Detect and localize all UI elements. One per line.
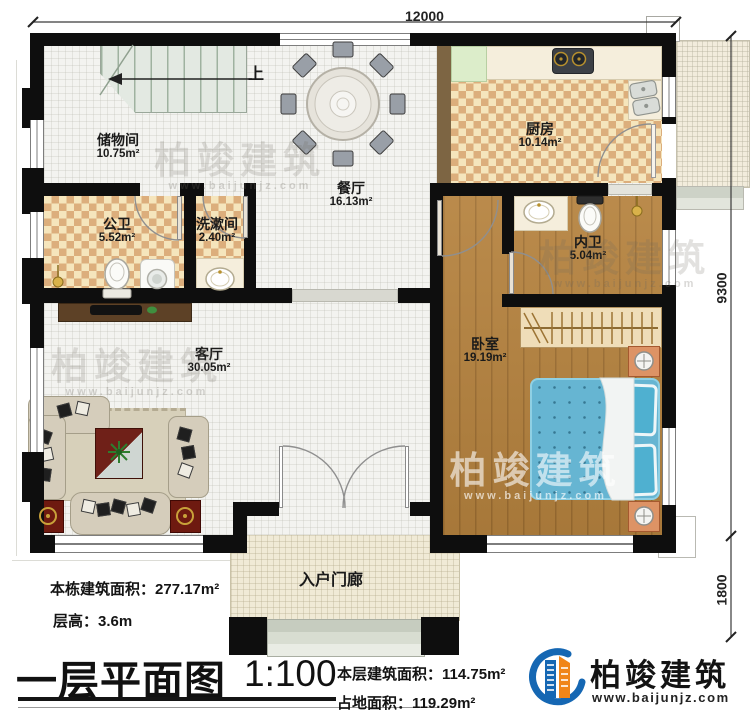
- wall-pilaster: [22, 168, 30, 214]
- coffee-table: [95, 428, 143, 479]
- entry-door-leaf: [405, 446, 409, 508]
- window-dining: [280, 33, 410, 46]
- ensuite-counter: [514, 196, 568, 231]
- side-terrace-steps: [676, 186, 744, 210]
- title-rule-thick: [18, 697, 336, 701]
- wall-ensuite-left: [502, 196, 514, 254]
- dimension-top: 12000: [405, 8, 444, 24]
- window-public-bath: [30, 212, 44, 258]
- entry-steps: [267, 619, 425, 657]
- room-label-public-bath: 公卫5.52m²: [99, 216, 135, 245]
- kitchen-side-counter: [628, 80, 662, 120]
- room-label-washroom: 洗漱间2.40m²: [196, 216, 238, 245]
- wall-entry-left: [245, 502, 279, 516]
- ground-line-bottom: [12, 560, 234, 561]
- wall-pilaster: [22, 258, 30, 304]
- stove: [552, 48, 594, 74]
- wall-pilaster: [22, 452, 30, 502]
- pillow: [626, 383, 658, 436]
- tv: [90, 305, 142, 315]
- room-label-ensuite: 内卫5.04m²: [570, 234, 606, 263]
- nightstand: [628, 346, 660, 377]
- entry-door-leaf: [279, 446, 283, 508]
- kitchen-terrace-door-opening: [662, 124, 676, 178]
- wall-dining-bottom: [398, 288, 443, 303]
- cushion: [126, 502, 141, 517]
- cushion: [81, 499, 96, 514]
- dimension-right-upper: 9300: [714, 272, 730, 303]
- porch-column-right: [421, 617, 459, 655]
- kitchen-prep-block: [451, 46, 487, 82]
- floor-plan-canvas: 储物间10.75m² 公卫5.52m² 洗漱间2.40m² 餐厅16.13m² …: [0, 0, 750, 718]
- wardrobe: [520, 307, 662, 348]
- room-label-living: 客厅30.05m²: [188, 346, 231, 375]
- wall-bath-top: [180, 183, 204, 196]
- room-label-dining: 餐厅16.13m²: [330, 180, 373, 209]
- dimension-right-lower: 1800: [714, 574, 730, 605]
- window-ensuite: [662, 230, 676, 285]
- plan-scale: 1:100: [244, 653, 337, 695]
- cushion: [181, 445, 196, 460]
- side-terrace: [676, 40, 750, 188]
- window-bedroom-right: [662, 428, 676, 505]
- wall-bath-bottom: [30, 288, 292, 303]
- kitchen-edge-strip: [437, 46, 451, 183]
- wall-pilaster: [22, 88, 30, 128]
- wall-kitchen-bottom: [430, 183, 608, 196]
- wall-top: [410, 33, 676, 46]
- floor-height-line: 层高：3.6m: [53, 610, 132, 631]
- brand-logo-icon: [528, 648, 586, 712]
- cushion: [75, 401, 90, 416]
- threshold-band: [292, 289, 398, 302]
- window-living-bottom: [55, 535, 203, 553]
- land-area-line: 占地面积：119.29m²: [337, 692, 475, 713]
- building-area-line: 本栋建筑面积：277.17m²: [50, 578, 219, 599]
- wall-top: [30, 33, 280, 46]
- kitchen-door-leaf: [651, 124, 656, 178]
- brand-logo: 柏竣建筑 www.baijunjz.com: [528, 648, 743, 714]
- ground-line-left: [16, 60, 17, 556]
- room-label-entry-porch: 入户门廊: [299, 572, 363, 590]
- end-table: [170, 500, 201, 533]
- kitchen-door-threshold: [608, 184, 652, 195]
- wall-ensuite-bottom: [502, 294, 662, 307]
- washroom-door-leaf: [243, 196, 248, 238]
- window-storage: [30, 120, 44, 168]
- wall-bath-top: [44, 183, 140, 196]
- room-label-kitchen: 厨房10.14m²: [519, 121, 562, 150]
- public-bath-door-leaf: [177, 196, 182, 240]
- window-living: [30, 348, 44, 452]
- wall-entry-jog: [233, 502, 247, 553]
- floor-area-line: 本层建筑面积：114.75m²: [337, 663, 505, 684]
- nightstand: [628, 501, 660, 532]
- wall-bath-top: [244, 183, 256, 196]
- wall-bath-divider: [184, 196, 196, 301]
- brand-website: www.baijunjz.com: [592, 690, 730, 705]
- cushion: [96, 502, 111, 517]
- porch-column-left: [229, 617, 267, 655]
- pillow: [626, 443, 658, 496]
- stairs-direction-label: 上: [248, 60, 264, 84]
- ensuite-door-leaf: [509, 252, 514, 294]
- window-kitchen: [662, 77, 676, 117]
- room-label-bedroom: 卧室19.19m²: [464, 336, 507, 365]
- wall-kitchen-bottom: [652, 183, 676, 196]
- bedroom-door-leaf: [437, 200, 442, 256]
- room-label-storage: 储物间10.75m²: [97, 132, 140, 161]
- brand-name: 柏竣建筑: [590, 650, 730, 695]
- window-bedroom-bottom: [487, 535, 633, 553]
